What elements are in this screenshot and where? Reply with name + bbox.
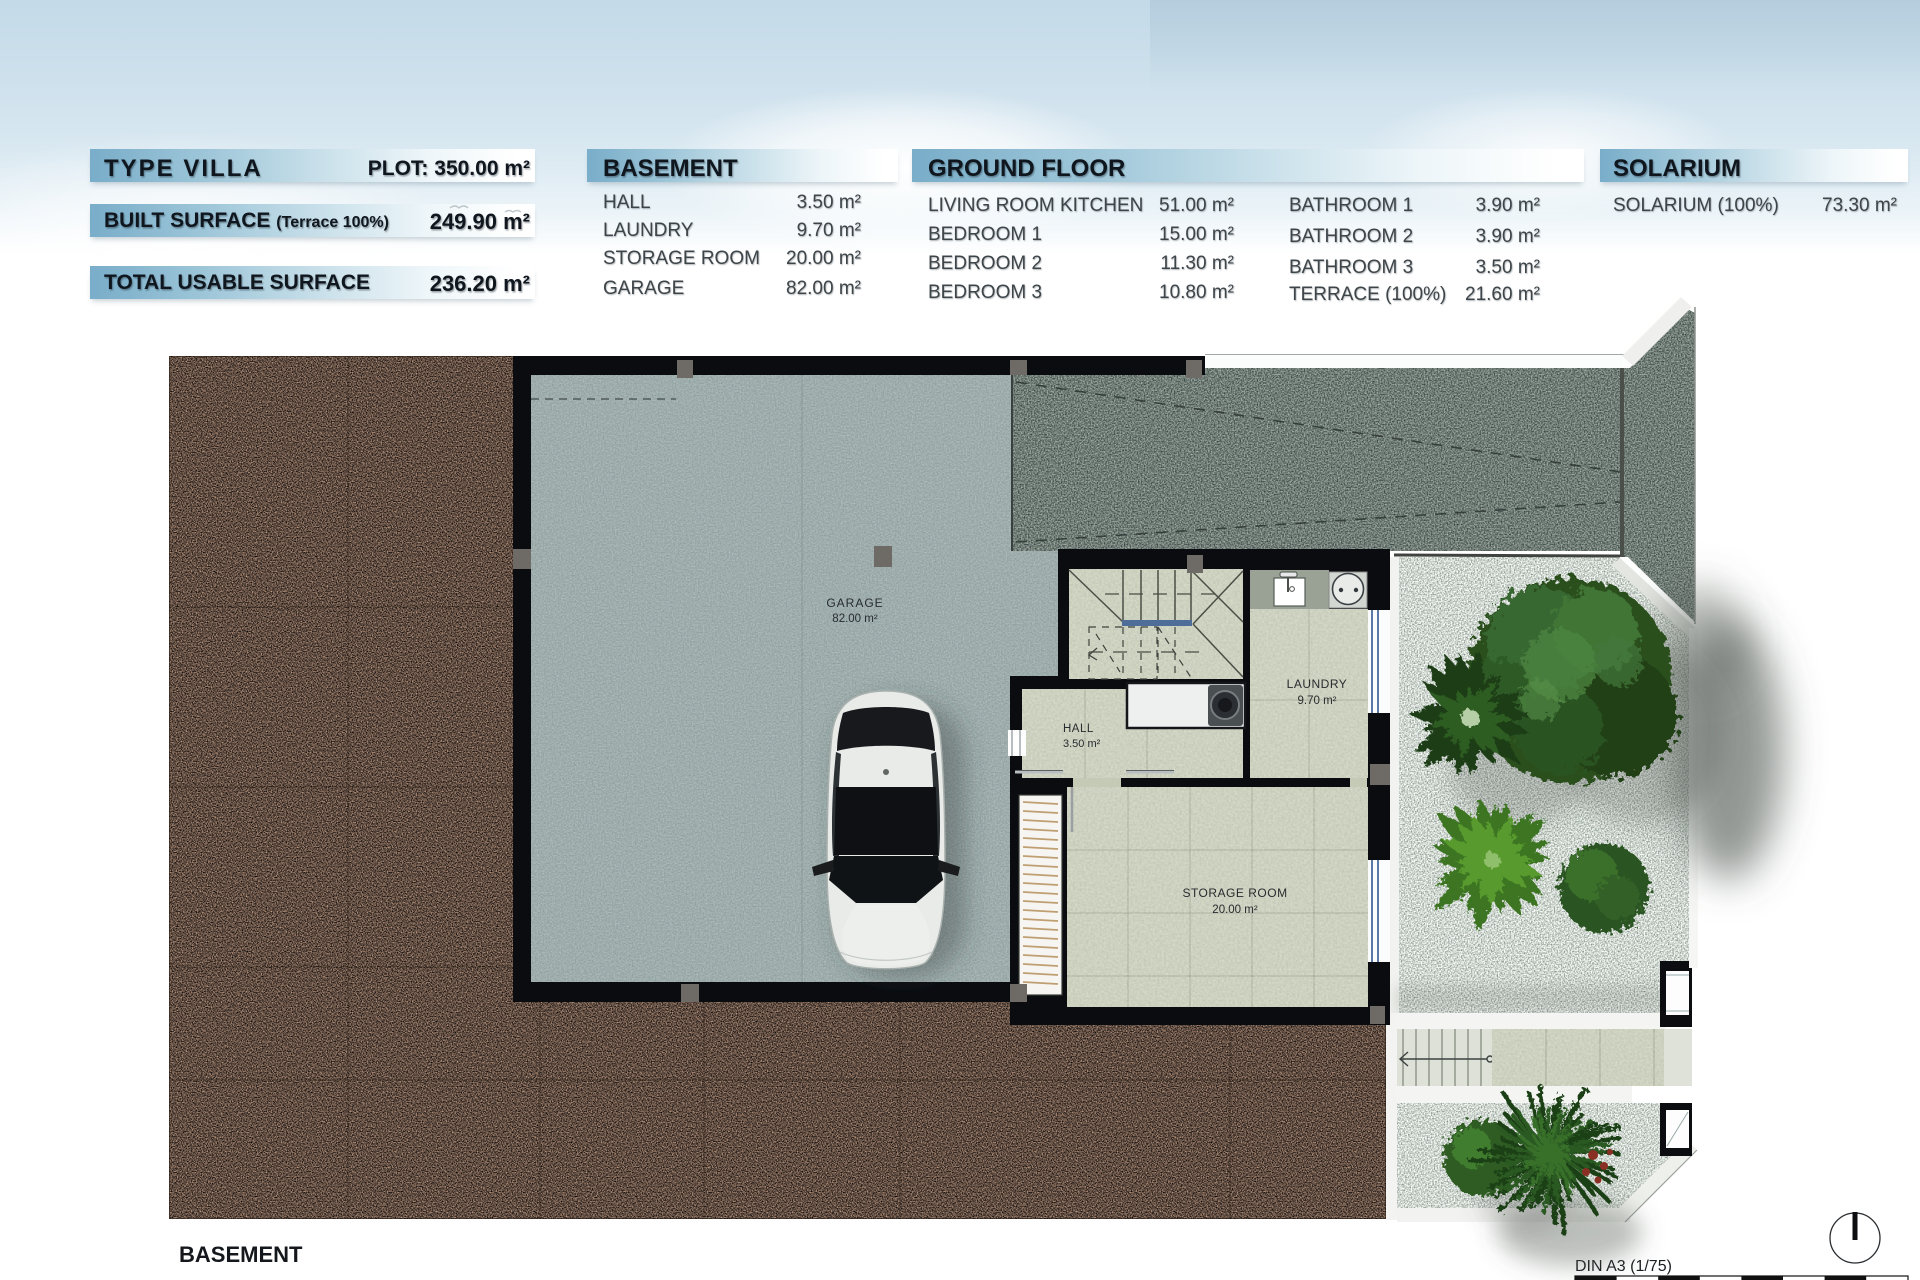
svg-text:GARAGE: GARAGE [826,596,883,610]
svg-text:82.00 m²: 82.00 m² [832,613,878,625]
svg-text:LAUNDRY: LAUNDRY [1287,677,1348,691]
svg-text:HALL: HALL [1063,723,1094,735]
svg-text:20.00 m²: 20.00 m² [1212,904,1258,916]
svg-text:3.50 m²: 3.50 m² [1063,738,1101,750]
svg-text:9.70 m²: 9.70 m² [1298,695,1337,707]
svg-text:STORAGE ROOM: STORAGE ROOM [1182,886,1287,900]
